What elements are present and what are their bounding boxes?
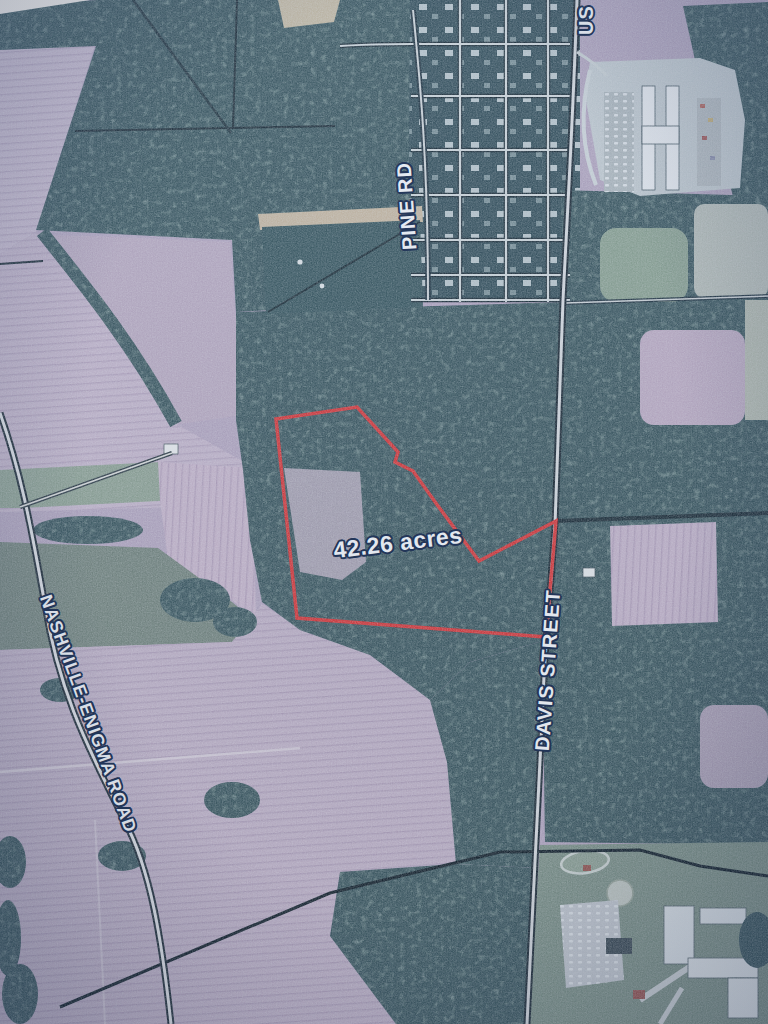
aerial-photo: US PINE RD 42.26 acres NASHVILLE-ENIGMA … [0, 0, 768, 1024]
photo-grain [0, 0, 768, 1024]
map-canvas [0, 0, 768, 1024]
label-us-highway: US [575, 5, 598, 35]
photo-corner-wedge [0, 0, 90, 14]
